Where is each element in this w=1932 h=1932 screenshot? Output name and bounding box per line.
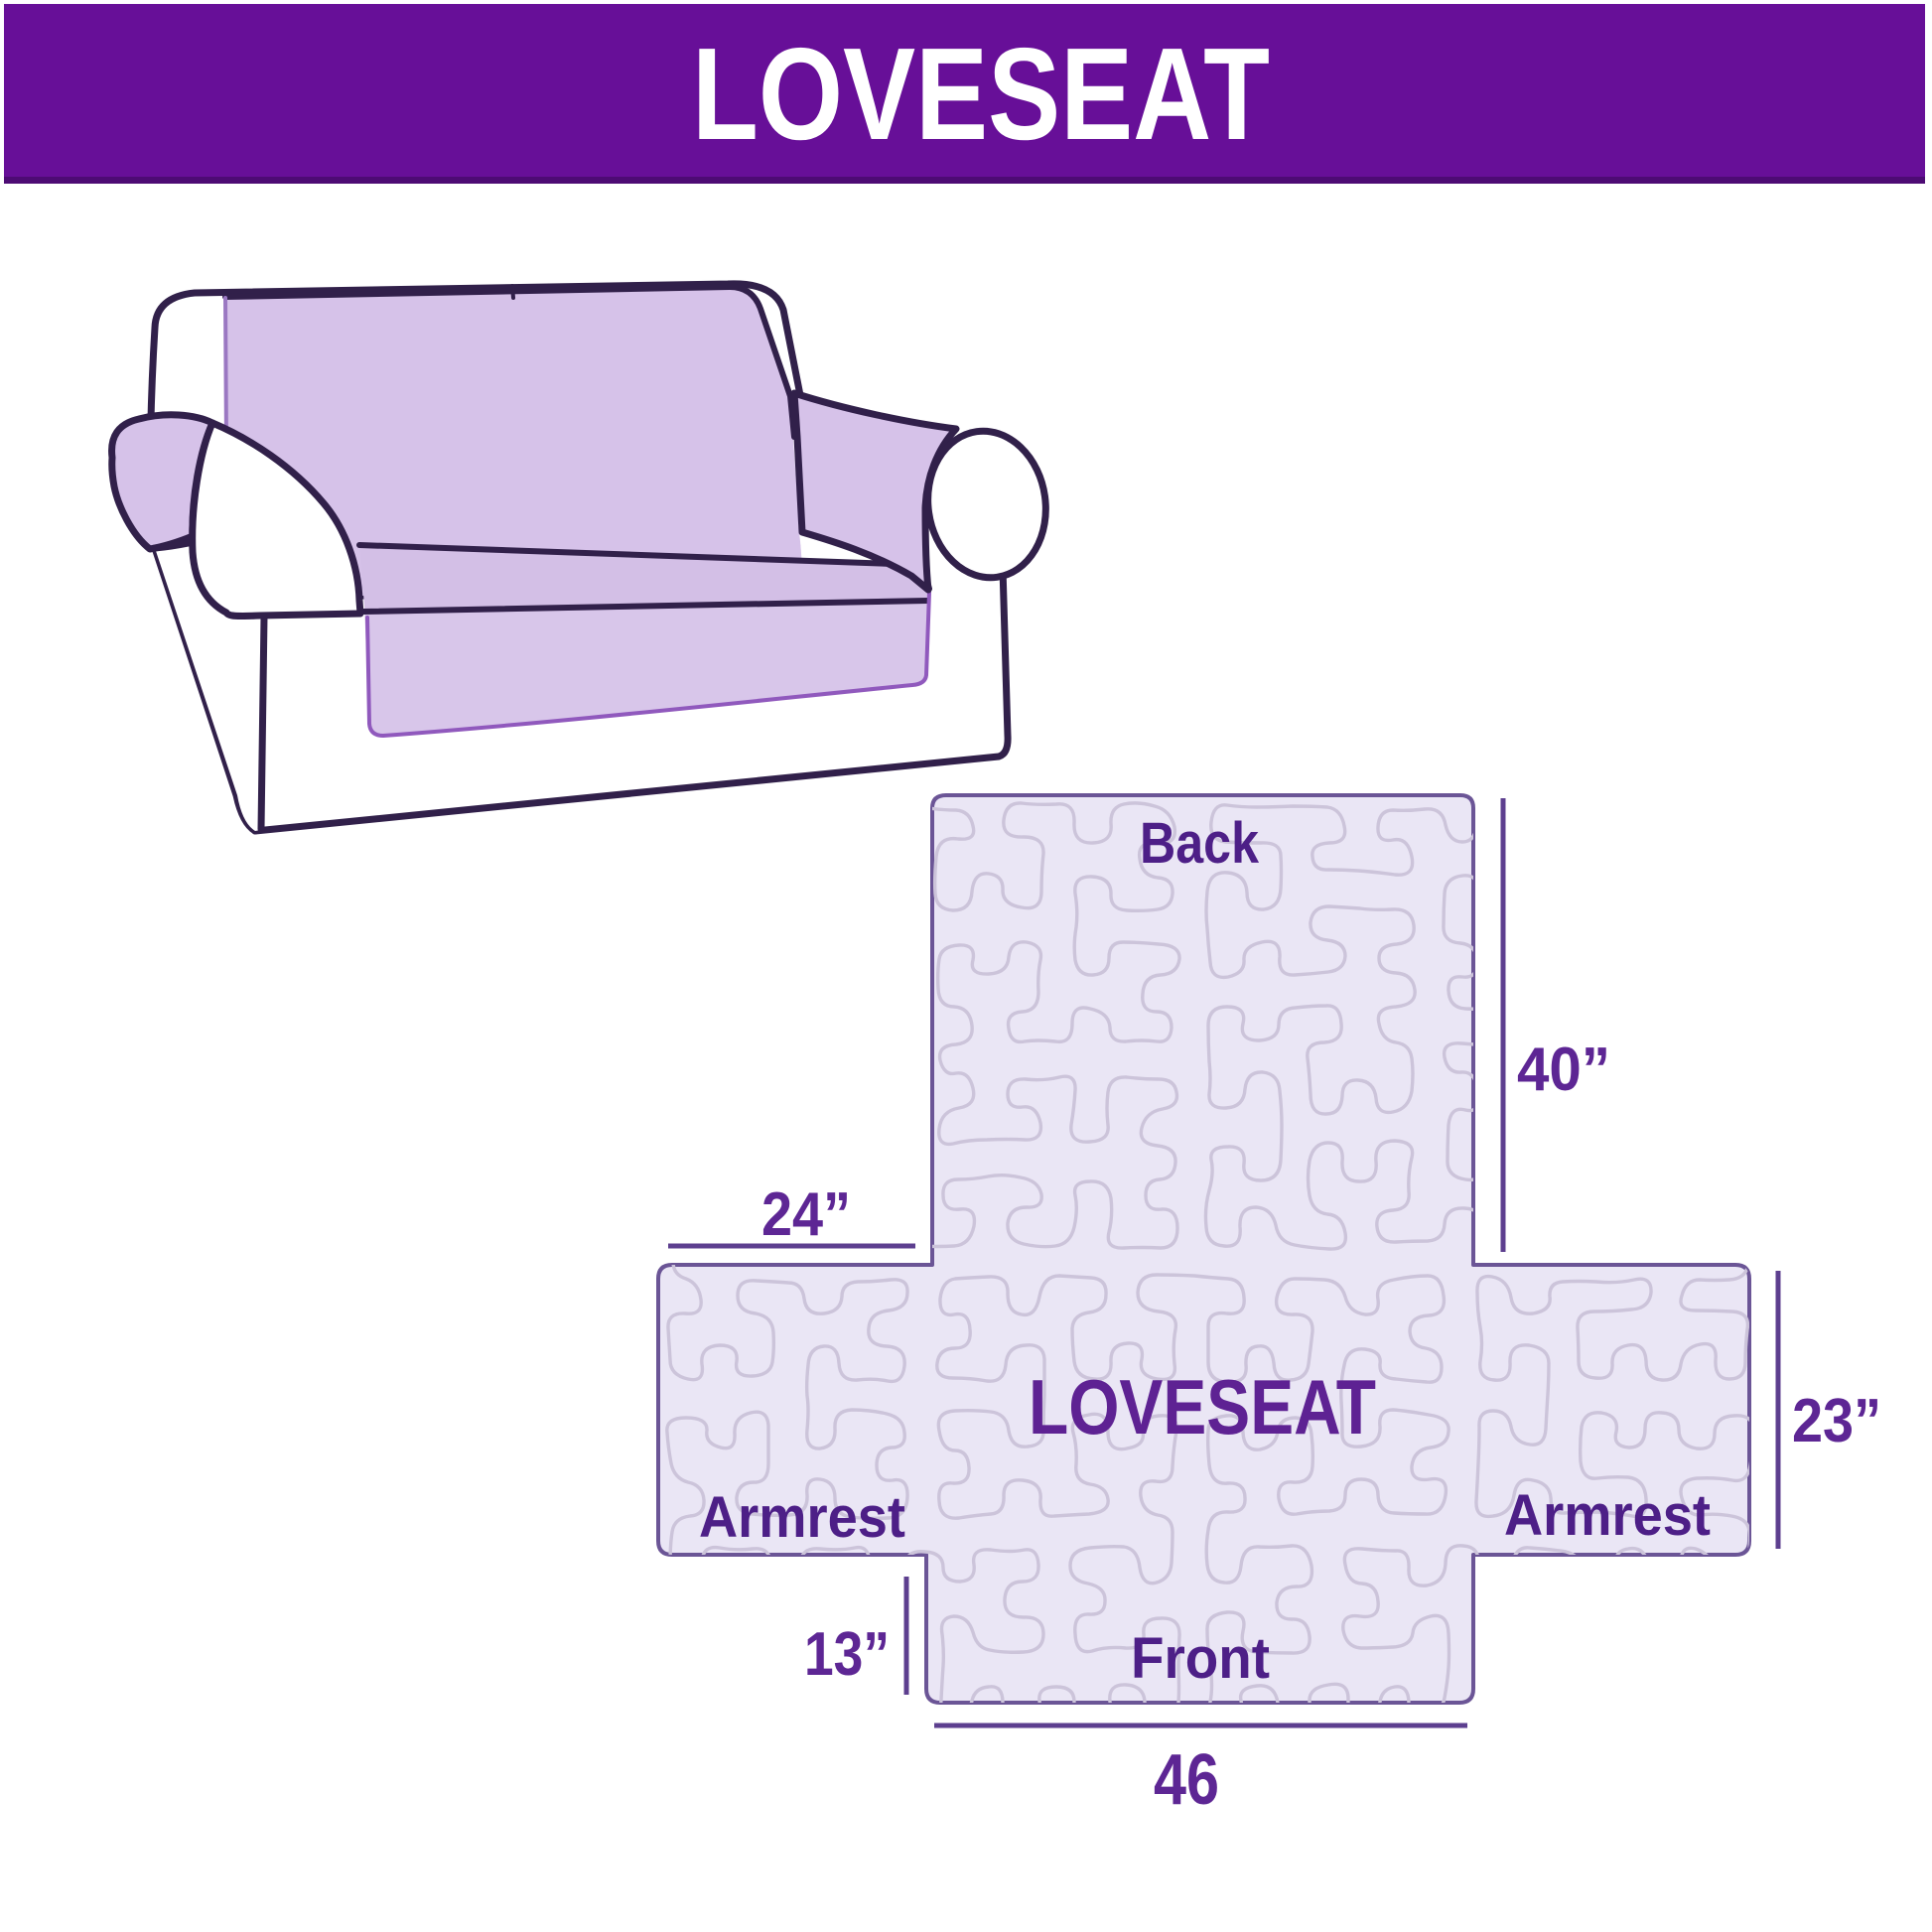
- svg-text:23”: 23”: [1792, 1387, 1881, 1455]
- svg-text:LOVESEAT: LOVESEAT: [1029, 1363, 1376, 1450]
- svg-text:Armrest: Armrest: [699, 1485, 905, 1550]
- svg-text:Front: Front: [1131, 1626, 1270, 1691]
- svg-text:46: 46: [1154, 1740, 1219, 1820]
- svg-text:13”: 13”: [804, 1620, 890, 1689]
- svg-text:40”: 40”: [1517, 1035, 1610, 1104]
- svg-text:LOVESEAT: LOVESEAT: [692, 21, 1270, 167]
- svg-text:24”: 24”: [761, 1180, 851, 1249]
- svg-text:Armrest: Armrest: [1504, 1483, 1711, 1548]
- svg-text:Back: Back: [1140, 811, 1260, 876]
